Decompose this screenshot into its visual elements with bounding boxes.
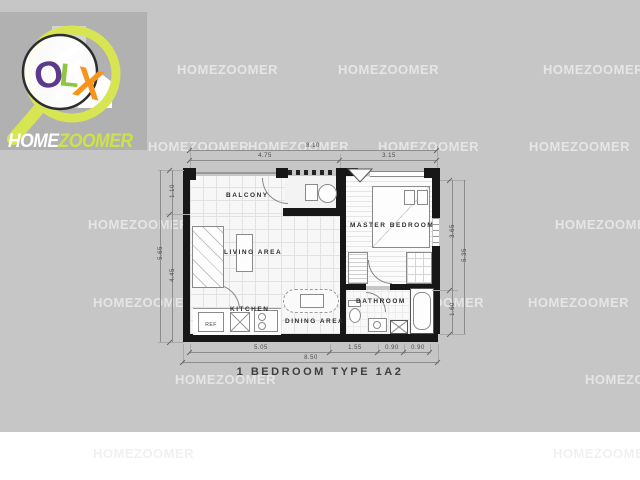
stove [230, 312, 250, 332]
wall-right-upper [432, 176, 440, 218]
room-label-bathroom: BATHROOM [356, 298, 406, 305]
dresser [348, 252, 368, 284]
dim-bottom-total: 8.50 [298, 355, 324, 361]
watermark: HOMEZOOMER [555, 217, 640, 232]
vent-triangle-icon [347, 168, 373, 183]
watermark: HOMEZOOMER [585, 372, 640, 387]
dim-top-total: 8.10 [300, 143, 326, 149]
wall-column [183, 168, 196, 180]
dim-right-upper: 3.65 [450, 218, 456, 244]
sink-basin [258, 322, 266, 330]
room-label-master: MASTER BEDROOM [350, 222, 434, 229]
wall-bedroom-bath-left [346, 284, 366, 290]
room-label-balcony: BALCONY [226, 192, 269, 199]
pillow [404, 190, 415, 205]
wordmark-home: HOME [8, 131, 59, 152]
wall-dining-bath [340, 286, 346, 334]
dim-left-upper: 1.10 [170, 178, 176, 204]
room-label-dining: DINING AREA [285, 318, 344, 325]
dim-left-lower: 4.45 [170, 262, 176, 288]
homezoomer-wordmark: HOMEZOOMER [8, 131, 133, 153]
toilet-bowl [349, 308, 361, 323]
balcony-railing [190, 172, 286, 174]
dining-table [300, 294, 324, 308]
watermark: HOMEZOOMER [528, 295, 629, 310]
extension-line [158, 170, 184, 171]
watermark: HOMEZOOMER [248, 139, 349, 154]
dim-line-bottom-total [183, 362, 438, 363]
ledge-dotted-edge [288, 170, 336, 175]
bathtub-inner [413, 292, 431, 330]
watermark: HOMEZOOMER [338, 62, 439, 77]
wall-right-mid [432, 246, 440, 290]
bedroom-window [370, 171, 424, 177]
watermark: HOMEZOOMER [543, 62, 640, 77]
refrigerator: REF [198, 312, 224, 332]
extension-line [340, 154, 341, 168]
extension-line [432, 290, 458, 291]
dim-top-left: 4.75 [252, 153, 278, 159]
dim-line-top-total [190, 150, 437, 151]
condenser-unit [318, 184, 337, 203]
plan-title: 1 BEDROOM TYPE 1A2 [200, 366, 440, 378]
dim-line-bottom-split [190, 352, 430, 353]
dim-bottom-s3: 0.90 [379, 345, 405, 351]
sink-basin [258, 313, 266, 321]
listing-image: HOMEZOOMER HOMEZOOMER HOMEZOOMER HOMEZOO… [0, 0, 640, 480]
ac-unit [305, 184, 318, 201]
watermark: HOMEZOOMER [88, 217, 189, 232]
olx-magnifier-logo: O L X [0, 12, 147, 150]
dim-right-total: 5.35 [462, 242, 468, 268]
dim-left-total: 5.65 [158, 240, 164, 266]
room-label-living: LIVING AREA [224, 249, 282, 256]
dim-right-lower: 1.60 [450, 296, 456, 322]
wall-bottom [183, 334, 438, 342]
watermark: HOMEZOOMER [177, 62, 278, 77]
dim-bottom-s1: 5.05 [248, 345, 274, 351]
wardrobe [406, 252, 432, 284]
watermark: HOMEZOOMER [93, 446, 194, 461]
dim-top-right: 3.15 [376, 153, 402, 159]
wall-left [183, 168, 190, 342]
watermark: HOMEZOOMER [553, 446, 640, 461]
watermark: HOMEZOOMER [529, 139, 630, 154]
wall-column [276, 168, 288, 178]
wall-living-bedroom [340, 176, 346, 286]
extension-line [440, 334, 466, 335]
watermark: HOMEZOOMER [148, 139, 249, 154]
wall-ledge-bottom [283, 208, 339, 216]
shower-drain [390, 320, 408, 334]
watermark: HOMEZOOMER [378, 139, 479, 154]
vanity-basin [373, 321, 381, 329]
room-label-kitchen: KITCHEN [230, 306, 269, 313]
pillow [417, 190, 428, 205]
ref-label: REF [205, 322, 217, 328]
wordmark-zoomer: ZOOMER [59, 131, 133, 152]
watermark: HOMEZOOMER [93, 295, 194, 310]
olx-logo-tile: O L X [0, 12, 147, 150]
photo-background: HOMEZOOMER HOMEZOOMER HOMEZOOMER HOMEZOO… [0, 0, 640, 432]
dim-bottom-s4: 0.90 [405, 345, 431, 351]
kitchen-sink [254, 310, 278, 332]
dim-line-top-split [190, 160, 437, 161]
sofa [192, 226, 224, 288]
dim-bottom-s2: 1.55 [342, 345, 368, 351]
dim-tick [435, 360, 441, 366]
extension-line [158, 342, 184, 343]
extension-line [440, 180, 466, 181]
